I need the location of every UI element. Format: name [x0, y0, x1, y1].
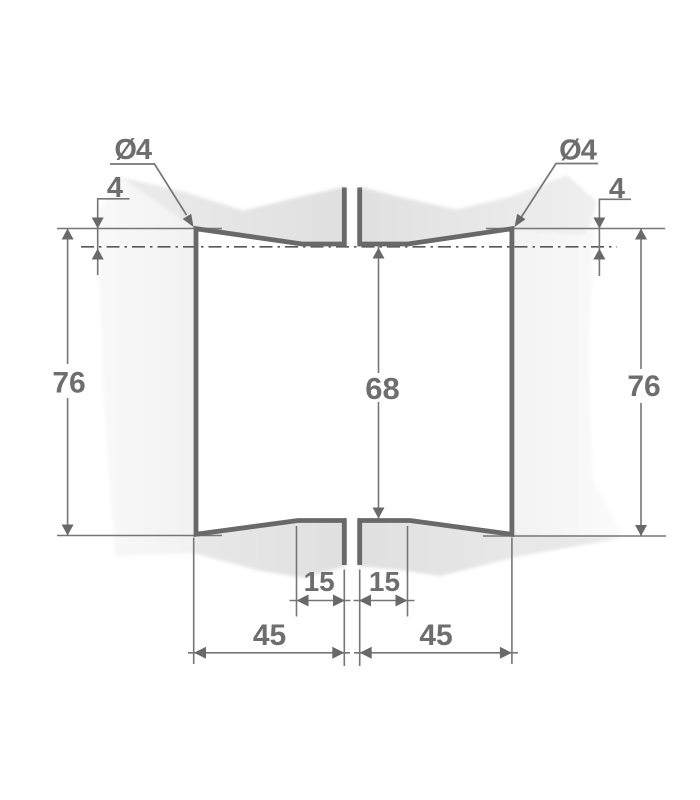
- svg-text:76: 76: [627, 370, 660, 403]
- svg-text:Ø4: Ø4: [114, 134, 152, 166]
- svg-text:15: 15: [369, 566, 400, 597]
- svg-text:Ø4: Ø4: [559, 135, 597, 167]
- svg-text:15: 15: [304, 566, 335, 597]
- svg-text:68: 68: [365, 371, 399, 406]
- svg-text:45: 45: [253, 619, 286, 652]
- svg-text:76: 76: [52, 367, 85, 400]
- svg-text:4: 4: [107, 172, 123, 204]
- svg-text:4: 4: [609, 173, 625, 205]
- svg-text:45: 45: [419, 619, 452, 652]
